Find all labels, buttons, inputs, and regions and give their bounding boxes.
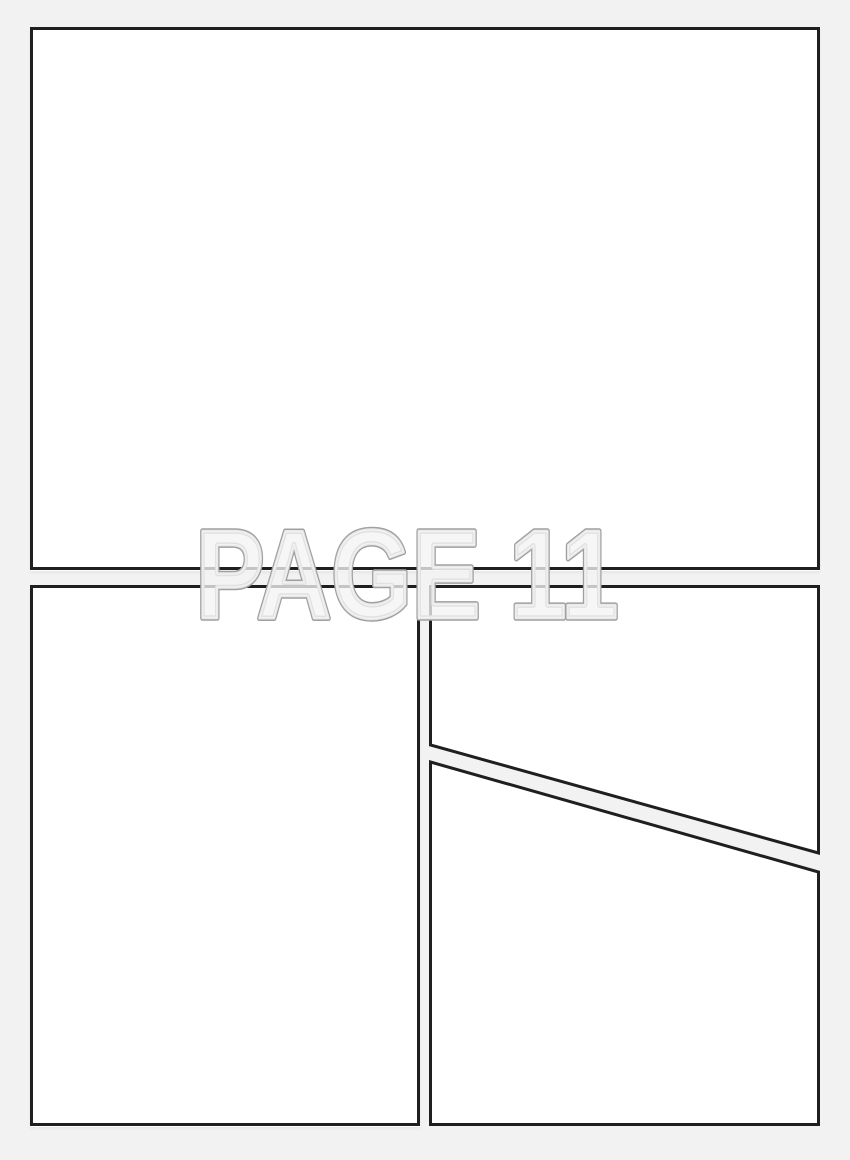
comic-page-template: PAGE 11 PAGE 11 xyxy=(0,0,850,1160)
panel-top xyxy=(30,27,820,570)
panel-bottom-right-group xyxy=(429,585,820,1126)
panel-bottom-left xyxy=(30,585,420,1126)
